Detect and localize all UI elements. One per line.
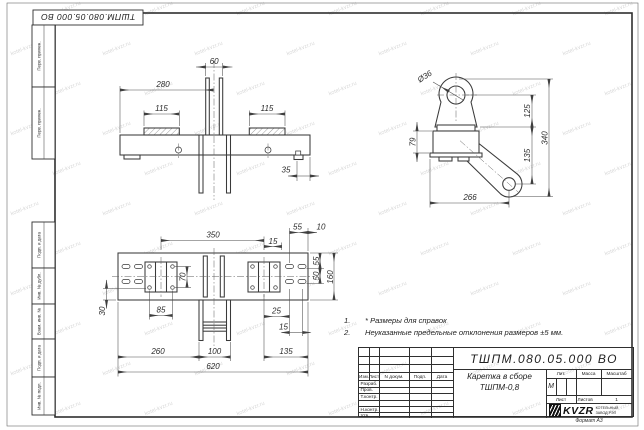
- dim-135-bottom: 135: [279, 347, 293, 356]
- dim-620: 620: [206, 362, 220, 371]
- plan-slot: [286, 265, 294, 269]
- note-1: 1. * Размеры для справок: [344, 315, 563, 327]
- left-margin-boxes: Перв. примен. Перв. примен. Подп. и дата…: [32, 25, 55, 415]
- notes: 1. * Размеры для справок 2. Неуказанные …: [344, 315, 563, 338]
- tb-row-utv: Утв.: [359, 412, 381, 418]
- format-label: Формат А3: [544, 418, 634, 424]
- view-side: 125 135 340 79 266 Ø36: [409, 68, 554, 207]
- tb-doc-number: ТШПМ.080.05.000 ВО: [453, 348, 635, 369]
- dim-350: 350: [206, 231, 220, 240]
- tb-listov-value: 1: [609, 395, 624, 403]
- dim-35: 35: [282, 166, 291, 175]
- logo-text: KVZR: [563, 405, 594, 417]
- dim-55-right: 55: [312, 256, 321, 265]
- tb-col-izm: Изм.: [359, 372, 369, 380]
- label-podp-data-2: Подп. и дата: [37, 345, 42, 371]
- tb-massa-header: Масса: [576, 369, 601, 378]
- tb-col-data: Дата: [431, 372, 453, 380]
- dim-30: 30: [98, 306, 107, 315]
- logo-emblem-icon: [549, 404, 561, 417]
- label-perv-primen-1: Перв. примен.: [37, 41, 42, 70]
- plan-slot: [135, 280, 143, 284]
- note-1-number: 1.: [344, 315, 365, 327]
- front-foot-right: [294, 155, 303, 160]
- front-leg-right: [227, 155, 231, 193]
- label-inv-dubl: Инв. № дубл.: [37, 272, 42, 299]
- side-foot-2: [458, 157, 469, 161]
- tb-part-name: Каретка в сборе: [453, 371, 546, 382]
- channel-plate-right: [219, 78, 222, 135]
- dim-25: 25: [271, 307, 281, 316]
- dim-135-side: 135: [523, 148, 532, 162]
- plan-slot: [122, 280, 130, 284]
- front-pad-right: [249, 128, 285, 135]
- stamp-doc-number: ТШПМ.080.05.000 ВО: [41, 12, 136, 22]
- side-block: [433, 131, 479, 153]
- dim-100: 100: [208, 347, 222, 356]
- dim-260: 260: [150, 347, 165, 356]
- tb-col-podp: Подп.: [409, 372, 431, 380]
- tb-part-variant: ТШПМ-0,8: [453, 382, 546, 393]
- front-pad-left: [144, 128, 179, 135]
- dim-115-right: 115: [261, 104, 274, 113]
- logo-subtitle-line1: КОТЕЛЬНЫЙ: [596, 406, 619, 410]
- tb-masshtab-header: Масштаб: [601, 369, 632, 378]
- label-inv-podl: Инв. № подл.: [37, 382, 42, 409]
- channel-plate-left: [206, 78, 210, 135]
- tb-row-tkontr: Т.контр.: [359, 393, 381, 400]
- dim-55-top: 55: [293, 223, 302, 232]
- side-foot-1: [439, 157, 452, 161]
- dim-266: 266: [462, 193, 477, 202]
- plan-rail-left: [199, 300, 203, 341]
- drawing-sheet: kotel-kvzr.rukotel-kvzr.rukotel-kvzr.ruk…: [0, 0, 644, 430]
- view-plan: 350 15 55 10 55 50 160 70 85: [98, 223, 338, 377]
- tb-lit-value: М: [546, 378, 556, 395]
- note-2: 2. Неуказанные предельные отклонения раз…: [344, 327, 563, 339]
- tb-list-label: Лист: [546, 395, 576, 403]
- note-2-text: Неуказанные предельные отклонения размер…: [365, 327, 563, 339]
- dim-160: 160: [326, 270, 335, 284]
- note-1-text: * Размеры для справок: [365, 315, 447, 327]
- dim-15-top: 15: [269, 237, 278, 246]
- plan-slot: [298, 265, 306, 269]
- label-perv-primen-2: Перв. примен.: [37, 108, 42, 137]
- title-block: Изм. Лист N докум. Подп. Дата Разраб. Пр…: [358, 347, 634, 417]
- front-plate: [120, 135, 310, 155]
- label-podp-data-1: Подп. и дата: [37, 232, 42, 258]
- dim-125: 125: [523, 104, 532, 118]
- plan-slot: [135, 265, 143, 269]
- logo-subtitle: КОТЕЛЬНЫЙ ЗАВОД РЭП: [596, 406, 619, 414]
- dim-60: 60: [210, 57, 219, 66]
- dim-115-left: 115: [155, 104, 168, 113]
- dim-50: 50: [312, 271, 321, 280]
- logo-subtitle-line2: ЗАВОД РЭП: [596, 411, 619, 415]
- tb-lit-header: Лит.: [546, 369, 576, 378]
- plan-rung-2: [203, 328, 227, 331]
- side-top-plate: [437, 125, 475, 131]
- dim-10: 10: [317, 223, 326, 232]
- plan-slot: [286, 280, 294, 284]
- dim-79: 79: [409, 137, 418, 146]
- dim-15-bottom: 15: [279, 323, 288, 332]
- plan-rung-1: [203, 322, 227, 325]
- dim-280: 280: [155, 80, 170, 89]
- side-flange: [430, 153, 482, 157]
- dim-70: 70: [179, 272, 188, 281]
- plan-slot: [298, 280, 306, 284]
- note-2-number: 2.: [344, 327, 365, 339]
- tb-listov-label: Листов: [576, 395, 608, 403]
- dim-340: 340: [541, 131, 550, 145]
- dim-dia36: Ø36: [415, 68, 434, 85]
- tb-col-list: Лист: [369, 372, 379, 380]
- front-bolt-nut: [296, 151, 301, 155]
- view-front-elevation: 280 60 115 115 35: [120, 57, 319, 200]
- top-left-stamp: ТШПМ.080.05.000 ВО: [33, 10, 143, 25]
- plan-rail-right: [227, 300, 231, 341]
- dim-85: 85: [157, 306, 166, 315]
- front-foot-left: [124, 155, 140, 159]
- company-logo: KVZR КОТЕЛЬНЫЙ ЗАВОД РЭП: [549, 404, 618, 417]
- label-vzam-inv: Взам. инв. №: [37, 308, 42, 335]
- front-leg-left: [199, 155, 203, 193]
- plan-slot: [122, 265, 130, 269]
- tb-col-ndoc: N докум.: [379, 372, 409, 380]
